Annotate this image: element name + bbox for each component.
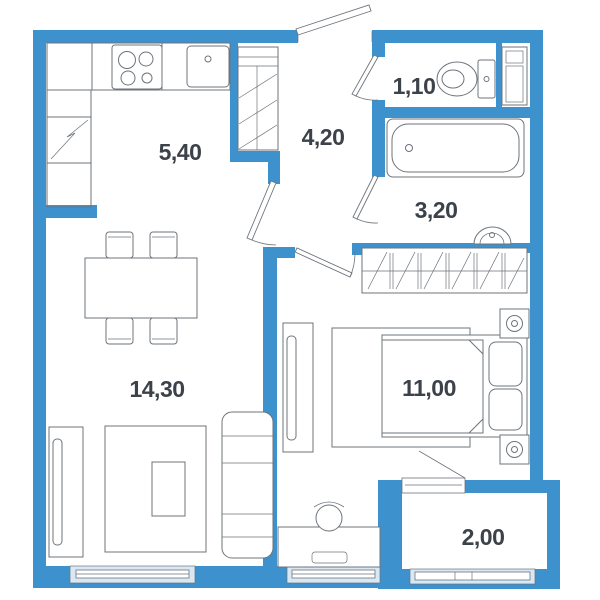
room-label-kitchen: 5,40: [159, 139, 202, 165]
nightstand-icon: [500, 309, 529, 338]
window-balcony: [410, 569, 535, 584]
washing-machine-icon: [502, 47, 527, 105]
nightstand-icon: [500, 435, 529, 464]
wardrobe-icon: [362, 248, 527, 293]
wall-closet-stub: [230, 151, 280, 162]
wall-top-left: [33, 30, 298, 43]
stove-icon: [112, 45, 162, 89]
coffee-table: [152, 462, 185, 516]
pillow: [489, 389, 522, 430]
window-living-room: [70, 566, 195, 583]
wall-toilet-bath: [385, 107, 530, 118]
room-label-bedroom: 11,00: [402, 375, 456, 401]
bathroom-door: [353, 175, 378, 223]
wall-hall-west: [268, 162, 280, 184]
wall-top-right: [372, 30, 543, 43]
bedroom-door: [295, 248, 355, 277]
pillow: [489, 342, 522, 386]
dining-table: [85, 258, 197, 318]
floor-plan: 5,40 4,20 1,10 3,20 14,30 11,00 2,00: [0, 0, 600, 600]
desk-icon: [278, 527, 380, 567]
entry-closet-icon: [238, 47, 278, 150]
fridge-cabinet-icon: [47, 90, 91, 207]
sofa-icon: [222, 412, 273, 558]
room-label-hallway: 4,20: [302, 124, 345, 150]
room-label-bathroom: 3,20: [415, 197, 458, 223]
room-label-living-room: 14,30: [129, 376, 184, 402]
toilet-door: [352, 55, 378, 100]
wall-left: [33, 30, 46, 588]
tv-stand-icon: [49, 427, 83, 557]
wall-washer-niche: [496, 43, 502, 107]
bathroom-fixtures: [387, 119, 524, 244]
entrance-door: [296, 5, 372, 42]
window-bedroom: [287, 566, 380, 583]
room-label-balcony: 2,00: [462, 524, 505, 550]
wall-right: [530, 30, 543, 493]
wall-hall-south-stub: [268, 247, 295, 258]
toilet-icon: [437, 60, 495, 98]
room-label-toilet: 1,10: [393, 73, 436, 99]
balcony-door: [402, 451, 465, 493]
bedroom-fixtures: [278, 248, 529, 567]
wall-balcony-left: [378, 480, 402, 589]
toilet-fixtures: [437, 47, 527, 105]
kitchen-fixtures: [47, 43, 230, 207]
hallway-door: [247, 181, 276, 245]
kitchen-sink-icon: [187, 46, 229, 87]
wash-basin-icon: [474, 227, 511, 244]
wall-balcony-top: [465, 480, 560, 493]
wall-kitchen-closet: [230, 43, 238, 152]
wall-hall-bath-mid: [372, 100, 385, 177]
wall-balcony-right: [547, 480, 560, 589]
bathtub-icon: [387, 119, 524, 177]
bedroom-tv-panel-icon: [283, 323, 313, 452]
screenshot-root: 5,40 4,20 1,10 3,20 14,30 11,00 2,00: [0, 0, 600, 600]
